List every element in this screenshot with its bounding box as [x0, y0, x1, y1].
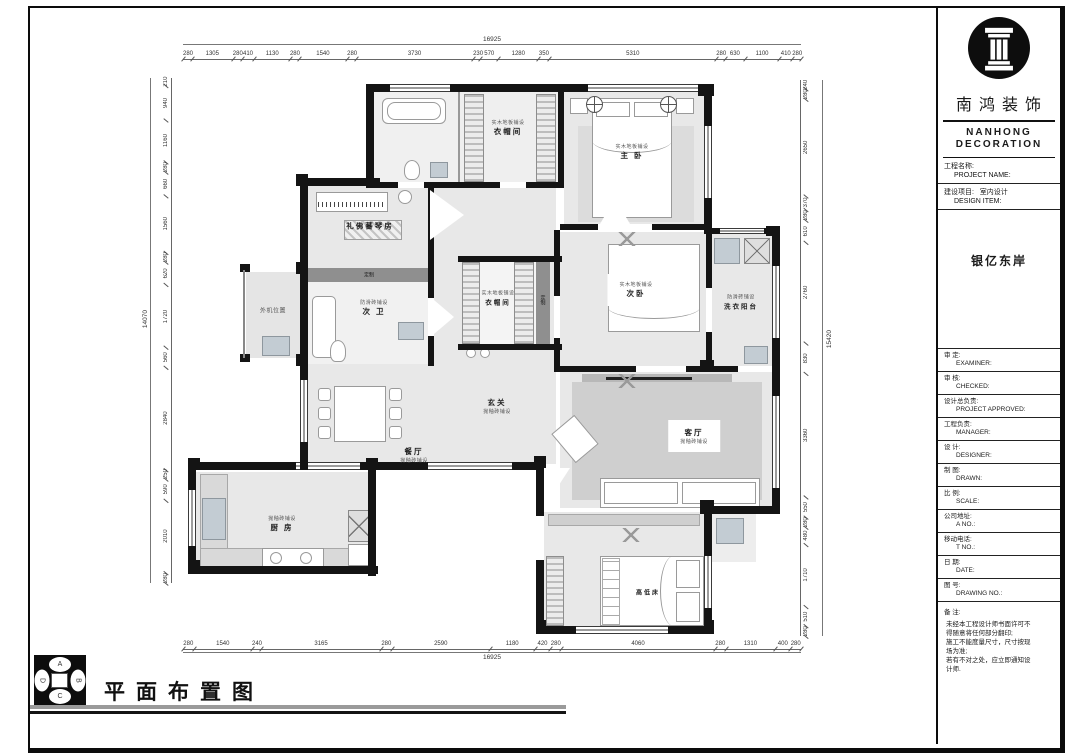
ac-outdoor-unit: [262, 336, 290, 356]
wall-corner: [296, 174, 308, 186]
door-opening: [738, 366, 772, 372]
pillow: [676, 592, 700, 622]
window: [720, 228, 764, 234]
column-icon: [968, 17, 1030, 79]
field-approved: 设计总负责:PROJECT APPROVED:: [938, 395, 1060, 418]
wall-corner: [536, 620, 546, 634]
wall: [366, 84, 374, 188]
field-manager: 工程负责:MANAGER:: [938, 418, 1060, 441]
door-opening: [428, 298, 434, 336]
field-designer: 设 计:DESIGNER:: [938, 441, 1060, 464]
field-address: 公司地址:A NO.:: [938, 510, 1060, 533]
label-bunk-bed: 高低床: [636, 588, 660, 597]
wall: [458, 256, 562, 262]
dim-col-left: 2109401160280660156028062017205602840250…: [161, 78, 172, 583]
wall: [368, 464, 376, 576]
dim-line: [150, 78, 151, 583]
chair: [318, 388, 331, 401]
dim-total-left: 14070: [142, 310, 149, 328]
chair: [318, 426, 331, 439]
piano-keys: [318, 202, 386, 207]
window: [300, 380, 308, 442]
field-examiner: 审 定:EXAMINER:: [938, 349, 1060, 372]
room-label-bedroom2: 实木地板铺设次卧: [607, 274, 664, 306]
wardrobe: [464, 94, 484, 182]
wall-corner: [704, 620, 714, 634]
door-opening: [398, 182, 424, 188]
label-custom-band: 定制: [364, 272, 374, 279]
wall-corner: [240, 354, 250, 362]
door-opening: [636, 366, 686, 372]
entry-door: [428, 462, 512, 470]
dim-row-top: 2801305280410113028015402803730230570128…: [183, 50, 801, 60]
window: [390, 84, 450, 92]
window: [772, 266, 780, 338]
wall: [366, 182, 562, 188]
dim-row-bottom: 2801540240316528025901180420280406028013…: [183, 640, 801, 650]
ac-mark-icon: [608, 374, 646, 388]
wall-corner: [296, 354, 308, 366]
door-opening: [536, 516, 544, 560]
room-label-bath2: 防滑砖铺设次 卫: [360, 299, 388, 317]
balcony-line: [243, 270, 245, 358]
stool: [398, 190, 412, 204]
ac-mark-icon: [612, 528, 650, 542]
dining-table: [334, 386, 386, 442]
wall-corner: [188, 560, 200, 574]
desk: [548, 514, 700, 526]
window: [704, 556, 712, 608]
label-custom-band: 定制: [540, 295, 547, 305]
wall-corner: [534, 456, 546, 468]
room-label-closet1: 实木地板铺设衣帽间: [491, 119, 524, 137]
field-design-item: 建设项目: 室内设计 DESIGN ITEM:: [938, 184, 1060, 210]
drawing-title: 平面布置图: [104, 676, 264, 706]
compass-c: C: [49, 689, 71, 704]
washbasin: [430, 162, 448, 178]
notes-block: 备 注: 未经本工程设计师书面许可不得随意将任何部分翻印;施工不能度量尺寸，尺寸…: [938, 602, 1060, 680]
dim-total-right: 15420: [826, 330, 833, 348]
wall-corner: [700, 360, 714, 372]
kitchen-cabinet: [348, 544, 370, 566]
wardrobe: [514, 262, 534, 344]
field-scale: 比 例:SCALE:: [938, 487, 1060, 510]
burner: [270, 552, 282, 564]
bathtub-inner: [387, 102, 441, 120]
room-label-living: 客厅抛釉砖铺设: [668, 420, 720, 452]
window: [704, 126, 712, 198]
room-label-hall: 玄关抛釉砖铺设: [483, 397, 511, 415]
wall: [300, 270, 308, 366]
wall-corner: [296, 262, 308, 274]
ac-mark-icon: [608, 232, 646, 246]
room-label-laundry: 防滑砖铺设洗衣阳台: [724, 294, 758, 311]
logo-wrap: [938, 8, 1060, 84]
wall-corner: [766, 226, 780, 236]
wall-corner: [188, 458, 200, 470]
wall: [188, 566, 378, 574]
field-checked: 审 核:CHECKED:: [938, 372, 1060, 395]
wall-corner: [240, 264, 250, 272]
ceiling-lamp-icon: [660, 96, 677, 113]
wardrobe: [536, 94, 556, 182]
window: [588, 84, 698, 92]
room-label-master: 实木地板铺设主 卧: [615, 143, 648, 161]
nightstand: [676, 98, 694, 114]
window: [576, 626, 668, 634]
compass-b: B: [71, 670, 86, 692]
field-project-name: 工程名称: PROJECT NAME:: [938, 158, 1060, 184]
room-label-outdoor: 外机位置: [260, 306, 286, 315]
wall-corner: [700, 500, 714, 512]
wall: [558, 92, 564, 188]
window: [188, 490, 196, 546]
chair: [318, 407, 331, 420]
door-opening: [598, 224, 652, 230]
ceiling-lamp-icon: [586, 96, 603, 113]
dim-line: [822, 80, 823, 636]
wall-corner: [366, 458, 378, 470]
compass-center: [51, 673, 68, 688]
chair: [389, 407, 402, 420]
vanity-sink: [398, 322, 424, 340]
dim-total-top: 16925: [183, 36, 801, 45]
toilet: [330, 340, 346, 362]
room-label-kitchen: 抛釉砖铺设厨 房: [268, 515, 296, 533]
dim-col-right: 2402802650370280610276083033605502804801…: [800, 80, 811, 636]
partition: [458, 92, 460, 182]
compass-a: A: [49, 657, 71, 672]
burner: [300, 552, 312, 564]
compass-d: D: [35, 670, 50, 692]
title-underline2: [30, 711, 566, 714]
pillow: [676, 560, 700, 588]
chair: [389, 388, 402, 401]
sofa-cushion: [604, 482, 678, 504]
window: [772, 396, 780, 488]
toilet: [404, 160, 420, 180]
field-phone: 移动电话:T NO.:: [938, 533, 1060, 556]
door-opening: [500, 182, 526, 188]
field-drawing-no: 图 号:DRAWING NO.:: [938, 579, 1060, 602]
room-label-piano: 礼佛蕃琴房: [346, 221, 394, 232]
bed-ladder: [602, 558, 620, 626]
title-underline: [30, 705, 566, 709]
door-opening: [706, 288, 712, 332]
kitchen-sink: [202, 498, 226, 540]
compass-icon: A B C D: [34, 655, 86, 707]
project-title: 银亿东岸: [938, 252, 1060, 349]
dim-total-bottom: 16925: [183, 652, 801, 661]
bay-cabinet: [716, 518, 744, 544]
nanhong-logo-icon: [968, 17, 1030, 79]
floor-plan: 实木地板铺设衣帽间 实木地板铺设主 卧 礼佛蕃琴房 定制 防滑砖铺设次 卫 外机…: [0, 0, 1080, 754]
room-label-dining: 餐厅抛釉砖铺设: [400, 446, 428, 464]
room-label-closet2: 实木地板铺设衣帽间: [481, 290, 514, 307]
wardrobe: [546, 556, 564, 626]
notes-label: 备 注:: [944, 608, 1054, 617]
wall: [458, 344, 562, 350]
door-opening: [554, 296, 560, 338]
title-block: 南鸿装饰 NANHONG DECORATION 工程名称: PROJECT NA…: [936, 8, 1060, 744]
field-date: 日 期:DATE:: [938, 556, 1060, 579]
dryer: [744, 238, 770, 264]
wardrobe: [462, 262, 480, 344]
laundry-sink: [744, 346, 768, 364]
washing-machine: [714, 238, 740, 264]
brand-name-cn: 南鸿装饰: [943, 84, 1055, 122]
chair: [389, 426, 402, 439]
brand-name-en: NANHONG DECORATION: [943, 122, 1055, 158]
sofa-cushion: [682, 482, 756, 504]
field-drawn: 制 图:DRAWN:: [938, 464, 1060, 487]
fridge: [348, 510, 370, 542]
